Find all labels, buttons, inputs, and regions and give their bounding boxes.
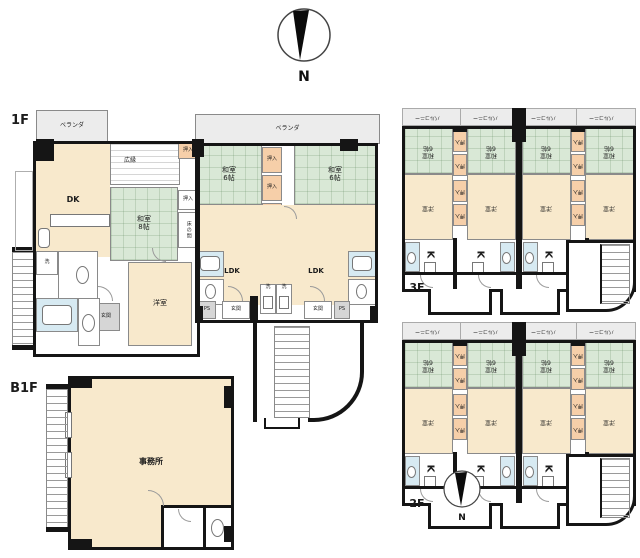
- floor1-label: 1F: [6, 112, 34, 130]
- f1-outerwall-west: [33, 141, 200, 357]
- f1-side-ledge: [15, 171, 33, 251]
- f2-label: 2F: [404, 496, 430, 512]
- b1f-label: B1F: [4, 380, 44, 398]
- b1f-stairs-wall-top: [46, 384, 68, 389]
- f2-balcony-label-1: バルコニー: [404, 324, 450, 338]
- f2-compass-north-label: N: [458, 513, 466, 523]
- f1-outerwall-east: [195, 143, 378, 323]
- f2-balcony-label-4: バルコニー: [578, 324, 624, 338]
- f3-balcony-label-1: バルコニー: [404, 110, 450, 124]
- f3-porch-2: [500, 289, 560, 315]
- f3-label: 3F: [404, 280, 430, 296]
- b1f-pillar-1: [68, 376, 92, 388]
- f1-pillar-4: [370, 306, 378, 323]
- f3-balcony-div-1: [460, 108, 461, 126]
- f2-north-compass-icon: N: [438, 468, 486, 524]
- f1-west-stairs: [12, 251, 34, 347]
- north-compass-icon: N: [268, 2, 340, 86]
- f3-porch-1: [428, 289, 492, 315]
- f1-pillar-1: [36, 139, 54, 161]
- f1-pillar-5: [195, 306, 203, 323]
- f2-stairs-treads: [600, 458, 630, 518]
- f3-balcony-div-3: [576, 108, 577, 126]
- b1f-west-stairs: [46, 388, 68, 528]
- f1-curved-wall: [308, 322, 364, 422]
- f1-pillar-3: [340, 139, 358, 151]
- f1-veranda-left-label: ベランダ: [60, 123, 84, 130]
- f3-balcony-label-4: バルコニー: [578, 110, 624, 124]
- floorplan-page: { "compass": { "n": "N" }, "palette": { …: [0, 0, 640, 558]
- compass-north-label: N: [298, 69, 310, 85]
- f2-balcony-div-1: [460, 322, 461, 340]
- f1-west-stairs-wall-bottom: [12, 345, 34, 350]
- f1-stair-exit: [264, 418, 300, 429]
- b1f-pillar-3: [68, 539, 92, 550]
- f2-porch-2: [500, 503, 560, 529]
- b1f-stairs-wall-bottom: [46, 527, 68, 532]
- f2-balcony-label-2: バルコニー: [462, 324, 508, 338]
- f1-pillar-2: [192, 139, 204, 157]
- b1f-pillar-2: [224, 386, 234, 408]
- f3-stairs-treads: [600, 244, 630, 304]
- f2-balcony-div-3: [576, 322, 577, 340]
- b1f-pillar-4: [224, 526, 234, 542]
- f1-stairwell-treads: [274, 326, 310, 418]
- f3-balcony-label-3: バルコニー: [520, 110, 566, 124]
- f2-balcony-label-3: バルコニー: [520, 324, 566, 338]
- b1f-outerwall: [68, 376, 234, 550]
- f3-balcony-label-2: バルコニー: [462, 110, 508, 124]
- f1-stairwell-wall: [253, 322, 257, 422]
- f1-veranda-top-label: ベランダ: [275, 126, 299, 133]
